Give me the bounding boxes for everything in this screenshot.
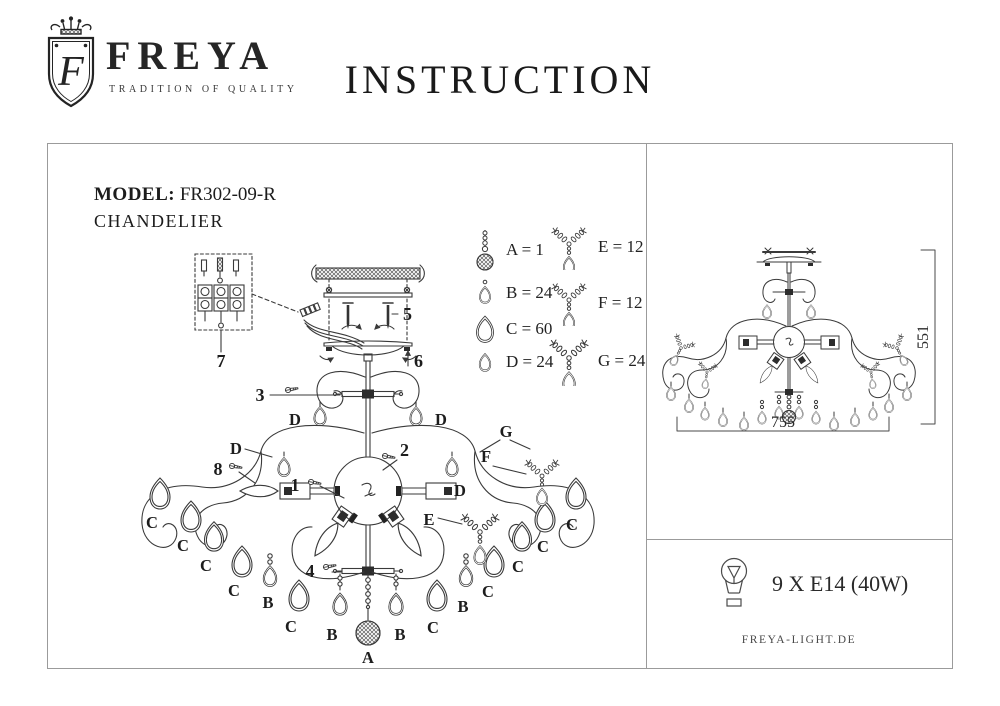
bulb-spec: 9 X E14 (40W) xyxy=(772,571,908,597)
label-part-b: B xyxy=(394,625,405,644)
parts-legend-col1: A = 1 B = 24 C = 60 xyxy=(472,228,553,373)
label-part-a: A xyxy=(362,648,374,667)
label-part-b: B xyxy=(326,625,337,644)
label-part-c: C xyxy=(566,515,578,534)
mini-chandelier xyxy=(662,248,916,431)
callout-3: 3 xyxy=(256,385,265,405)
legend-item-d: D = 24 xyxy=(472,351,553,373)
label-part-b: B xyxy=(457,597,468,616)
label-part-c: C xyxy=(228,581,240,600)
callout-leader-d xyxy=(245,449,272,457)
callout-2: 2 xyxy=(400,440,409,460)
label-part-d: D xyxy=(454,481,466,500)
lower-candle-left xyxy=(309,506,353,560)
lower-candle-right xyxy=(383,506,427,560)
label-part-b: B xyxy=(262,593,273,612)
large-teardrop-icon xyxy=(472,314,498,344)
bead-branch xyxy=(525,460,559,505)
label-part-g: G xyxy=(500,422,513,441)
label-part-e: E xyxy=(423,510,434,529)
label-part-c: C xyxy=(512,557,524,576)
website-url: FREYA-LIGHT.DE xyxy=(646,634,952,646)
legend-item-g: G = 24 xyxy=(548,336,645,386)
legend-label: E = 12 xyxy=(598,237,643,257)
label-part-d: D xyxy=(289,410,301,429)
callout-6: 6 xyxy=(414,351,423,371)
small-drop-bead-icon xyxy=(472,279,498,307)
upper-crossbar xyxy=(270,386,403,399)
brand-name: FREYA xyxy=(106,32,275,79)
dimension-drawing: 551 755 xyxy=(647,144,952,539)
legend-label: D = 24 xyxy=(506,352,553,372)
legend-item-c: C = 60 xyxy=(472,314,553,344)
label-part-c: C xyxy=(285,617,297,636)
label-part-c: C xyxy=(427,618,439,637)
assembly-diagram: 1 2 3 4 5 6 7 8 D D D D C C C C C C xyxy=(48,144,646,667)
width-dimension: 755 xyxy=(771,414,795,431)
parts-legend-col2: E = 12 F = 12 G = 24 xyxy=(548,224,645,386)
brand-monogram: F xyxy=(57,49,84,95)
label-part-c: C xyxy=(146,513,158,532)
callout-leader-f xyxy=(493,466,526,474)
legend-item-f: F = 12 xyxy=(548,280,645,326)
page-title: INSTRUCTION xyxy=(300,56,700,103)
legend-label: C = 60 xyxy=(506,319,552,339)
bead-branch-icon xyxy=(548,280,590,326)
callout-4: 4 xyxy=(306,561,315,581)
legend-item-b: B = 24 xyxy=(472,279,553,307)
legend-label: B = 24 xyxy=(506,283,552,303)
callout-8: 8 xyxy=(214,459,223,479)
legend-item-a: A = 1 xyxy=(472,228,553,272)
rotate-arrow-icon xyxy=(375,325,394,329)
bead-branch-icon xyxy=(548,336,590,386)
callout-7: 7 xyxy=(217,351,226,371)
legend-label: G = 24 xyxy=(598,351,645,371)
bulb-spec-section: 9 X E14 (40W) FREYA-LIGHT.DE xyxy=(646,539,952,668)
label-part-c: C xyxy=(177,536,189,555)
terminal-block-detail xyxy=(195,254,298,352)
content-frame: MODEL: FR302-09-R CHANDELIER xyxy=(47,143,953,669)
brand-tagline: TRADITION OF QUALITY xyxy=(109,84,298,95)
brand-shield-logo-icon: F xyxy=(40,14,102,112)
rotate-arrow-icon xyxy=(342,325,361,329)
label-part-d: D xyxy=(435,410,447,429)
legend-label: A = 1 xyxy=(506,240,544,260)
legend-label: F = 12 xyxy=(598,293,643,313)
label-part-c: C xyxy=(537,537,549,556)
callout-1: 1 xyxy=(291,475,300,495)
bead-chain-faceted-ball-icon xyxy=(472,228,498,272)
label-part-c: C xyxy=(200,556,212,575)
callout-leader-e xyxy=(438,518,462,524)
instruction-sheet: F FREYA TRADITION OF QUALITY INSTRUCTION… xyxy=(0,0,1000,706)
ceiling-canopy xyxy=(320,341,416,366)
height-dimension: 551 xyxy=(915,325,932,349)
label-part-c: C xyxy=(482,582,494,601)
bottom-chains xyxy=(333,574,403,645)
label-part-f: F xyxy=(481,447,491,466)
light-bulb-icon xyxy=(716,556,752,612)
right-arm-socket xyxy=(402,483,456,499)
callout-5: 5 xyxy=(403,304,412,324)
label-part-d: D xyxy=(230,439,242,458)
legend-item-e: E = 12 xyxy=(548,224,645,270)
mounting-bracket xyxy=(324,279,412,340)
bead-branch-icon xyxy=(548,224,590,270)
small-teardrop-icon xyxy=(472,351,498,373)
lower-crossbar xyxy=(323,563,403,576)
